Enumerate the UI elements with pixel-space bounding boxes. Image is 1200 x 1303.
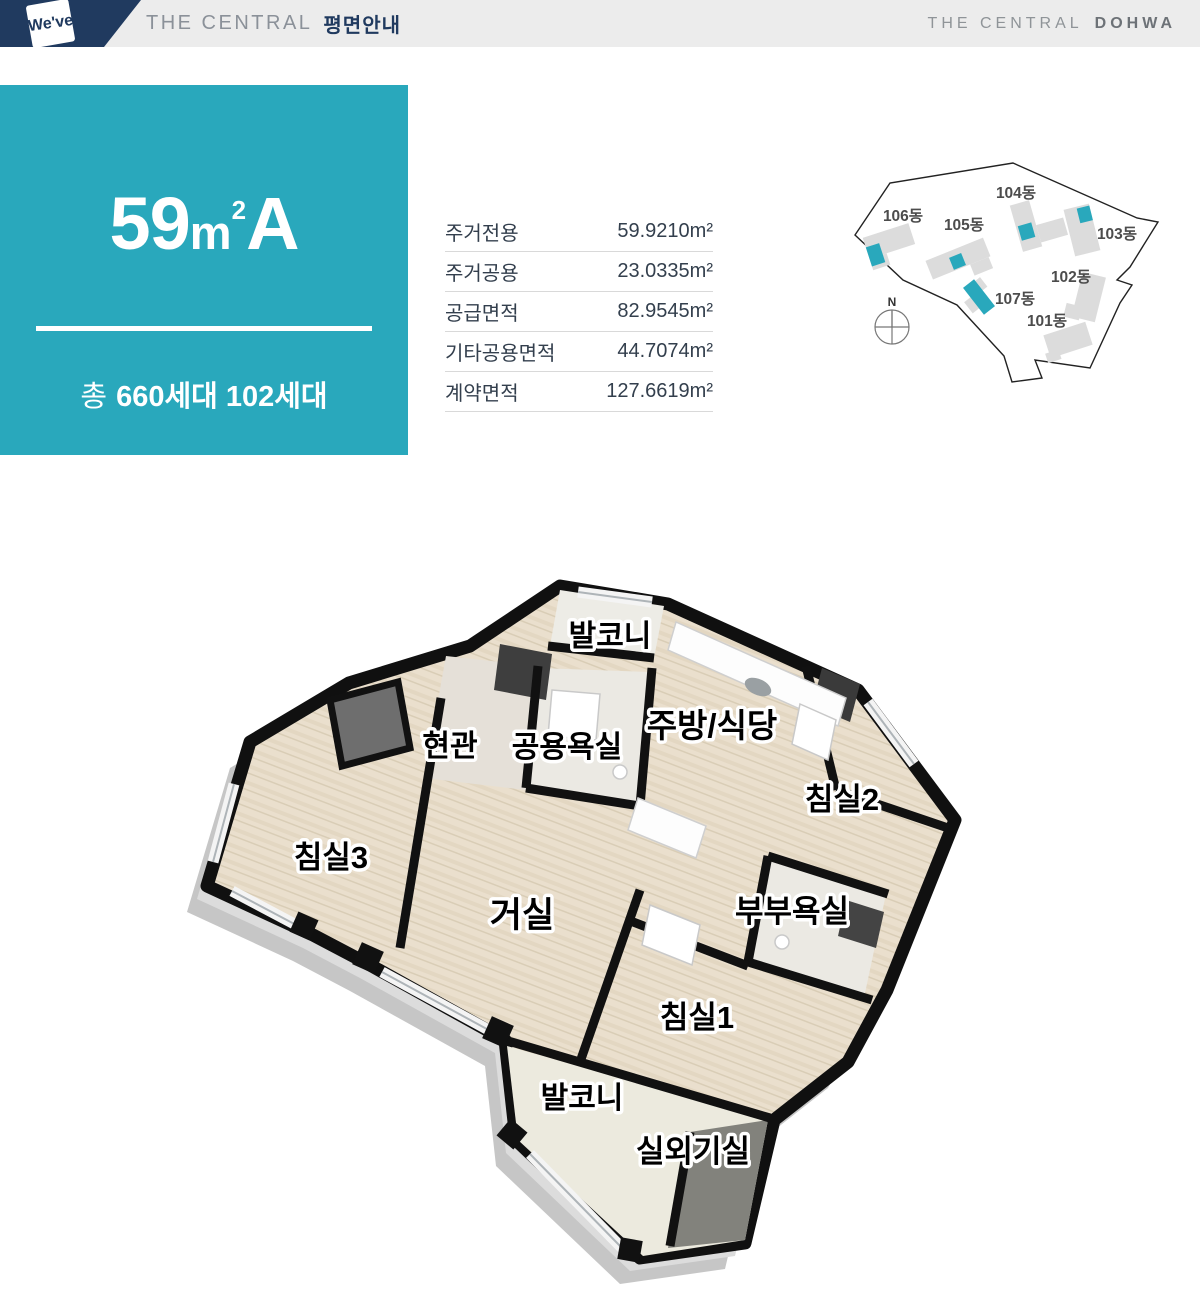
floor-plan: 발코니 현관 공용욕실 주방/식당 침실2 침실3 거실 부부욕실 침실1 발코… xyxy=(150,550,990,1290)
room-label-entrance: 현관 xyxy=(422,730,477,763)
area-row-label: 계약면적 xyxy=(445,377,567,406)
unit-type-panel: 59m2A 총660세대 102세대 xyxy=(0,85,408,455)
header-left-title: THE CENTRAL 평면안내 xyxy=(146,0,401,47)
table-row: 공급면적 82.9545m² xyxy=(445,292,713,332)
room-label-living-room: 거실 xyxy=(490,896,554,935)
north-compass-icon: N xyxy=(875,295,909,344)
building-106 xyxy=(863,223,919,270)
header-right-title: THE CENTRAL DOHWA xyxy=(928,0,1176,47)
building-107 xyxy=(957,276,1000,320)
room-label-kitchen-dining: 주방/식당 xyxy=(647,707,778,744)
building-label-102: 102동 xyxy=(1051,268,1091,286)
room-label-bedroom3: 침실3 xyxy=(294,840,368,875)
area-row-label: 공급면적 xyxy=(445,297,567,326)
north-label: N xyxy=(888,295,897,309)
project-brand: THE CENTRAL xyxy=(928,15,1083,33)
table-row: 주거공용 23.0335m² xyxy=(445,252,713,292)
building-label-107: 107동 xyxy=(995,290,1035,308)
area-row-value: 23.0335m² xyxy=(617,260,713,283)
household-count: 총660세대 102세대 xyxy=(0,373,408,415)
unit-size-unit: m xyxy=(190,206,232,259)
room-label-balcony-top: 발코니 xyxy=(569,620,652,653)
header-bar: We've THE CENTRAL 평면안내 THE CENTRAL DOHWA xyxy=(0,0,1200,47)
toilet-master xyxy=(775,935,789,949)
household-prefix: 총 xyxy=(80,381,107,413)
building-103 xyxy=(1064,204,1101,257)
unit-size-number: 59 xyxy=(109,182,189,265)
unit-type-suffix: A xyxy=(246,182,298,265)
area-row-value: 59.9210m² xyxy=(617,220,713,243)
building-105 xyxy=(925,238,994,291)
weve-logo-text: We've xyxy=(27,11,74,35)
header-navy-ribbon xyxy=(0,0,150,47)
table-row: 주거전용 59.9210m² xyxy=(445,212,713,252)
area-table: 주거전용 59.9210m² 주거공용 23.0335m² 공급면적 82.95… xyxy=(445,212,713,412)
weve-logo: We've xyxy=(26,0,76,48)
page-title: 평면안내 xyxy=(323,9,401,38)
area-row-value: 82.9545m² xyxy=(617,300,713,323)
room-label-common-bath: 공용욕실 xyxy=(512,731,622,764)
room-label-ac-room: 실외기실 xyxy=(636,1134,750,1169)
area-row-label: 주거전용 xyxy=(445,217,567,246)
household-numbers: 660세대 102세대 xyxy=(116,381,328,413)
table-row: 계약면적 127.6619m² xyxy=(445,372,713,412)
unit-size-superscript: 2 xyxy=(232,195,246,225)
building-label-106: 106동 xyxy=(883,207,923,225)
room-label-bedroom2: 침실2 xyxy=(805,782,879,817)
building-label-101: 101동 xyxy=(1027,312,1067,330)
area-row-label: 기타공용면적 xyxy=(445,337,567,366)
room-label-balcony-bottom: 발코니 xyxy=(541,1082,624,1115)
porch-duct xyxy=(494,644,552,700)
toilet-common xyxy=(613,765,627,779)
building-label-104: 104동 xyxy=(996,184,1036,202)
building-label-105: 105동 xyxy=(944,216,984,234)
room-label-bedroom1: 침실1 xyxy=(660,1000,734,1035)
project-name: DOHWA xyxy=(1095,15,1176,33)
table-row: 기타공용면적 44.7074m² xyxy=(445,332,713,372)
unit-panel-divider xyxy=(36,326,372,331)
unit-type-title: 59m2A xyxy=(0,171,408,284)
area-row-value: 44.7074m² xyxy=(617,340,713,363)
ac-box-northwest xyxy=(330,682,410,766)
building-label-103: 103동 xyxy=(1097,225,1137,243)
area-row-label: 주거공용 xyxy=(445,257,567,286)
brand-name: THE CENTRAL xyxy=(146,12,312,35)
room-label-master-bath: 부부욕실 xyxy=(735,894,849,929)
area-row-value: 127.6619m² xyxy=(606,380,713,403)
site-map: 101동 102동 103동 104동 105동 106동 107동 N xyxy=(845,155,1165,395)
